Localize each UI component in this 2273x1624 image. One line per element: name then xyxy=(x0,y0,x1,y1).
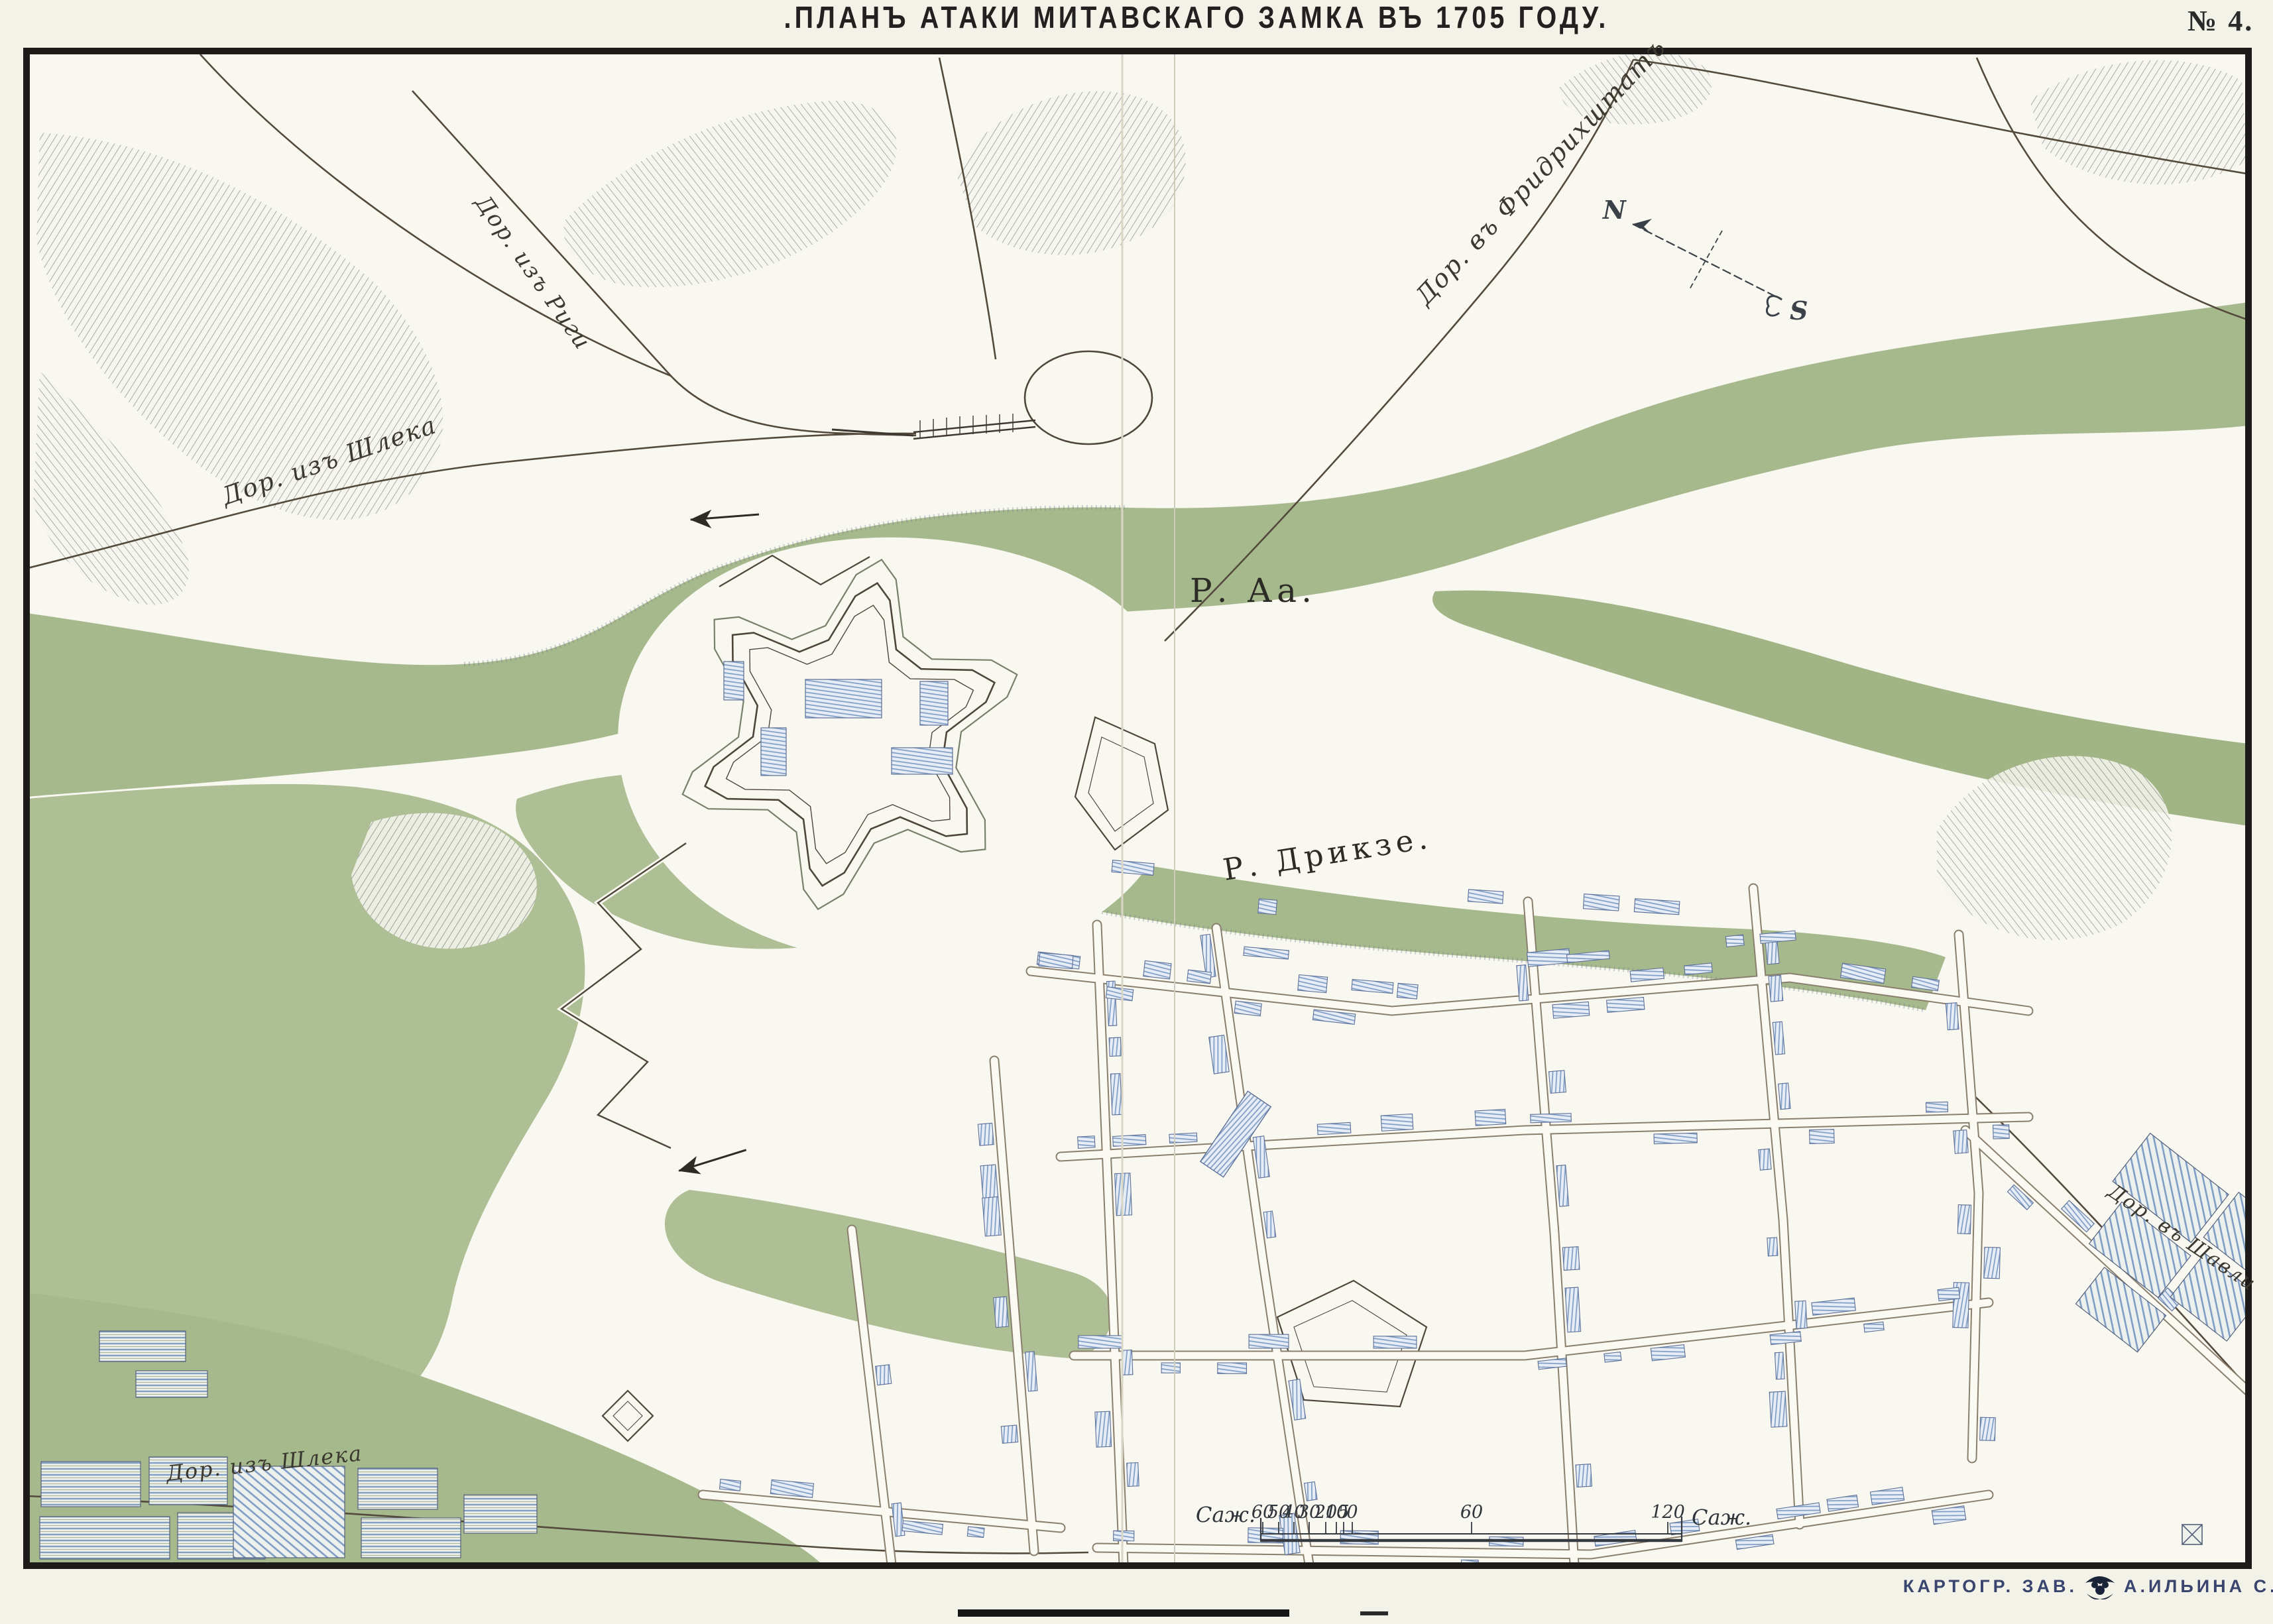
town-building xyxy=(1565,1287,1581,1332)
town-building xyxy=(967,1527,984,1537)
town-building xyxy=(1127,1463,1139,1487)
town-building xyxy=(994,1297,1009,1327)
town-building xyxy=(1095,1411,1112,1447)
oxbow-ring xyxy=(1025,351,1152,444)
historic-map-canvas: .ПЛАНЪ АТАКИ МИТАВСКАГО ЗАМКА ВЪ 1705 ГО… xyxy=(0,0,2273,1621)
town-building xyxy=(1143,960,1171,979)
town-building xyxy=(1113,1135,1146,1147)
town-building xyxy=(1562,1247,1580,1271)
town-building xyxy=(1980,1417,1996,1440)
town-building xyxy=(1552,1002,1590,1018)
town-building xyxy=(1078,1336,1122,1348)
scale-tick-label: 120 xyxy=(1651,1502,1685,1523)
town-building xyxy=(1769,1391,1787,1427)
town-building xyxy=(1953,1130,1969,1154)
town-building xyxy=(1110,1074,1122,1115)
town-building xyxy=(1725,935,1744,947)
town-building xyxy=(1864,1322,1885,1332)
town-building xyxy=(1549,1071,1566,1093)
scale-unit-left: Саж. xyxy=(1196,1502,1255,1527)
scale-unit-right: Саж. xyxy=(1692,1505,1751,1530)
town-building xyxy=(1305,1481,1318,1501)
town-building xyxy=(1114,1531,1134,1540)
town-building xyxy=(1938,1287,1959,1301)
town-building xyxy=(1775,1352,1784,1379)
town-building xyxy=(1106,987,1133,1001)
town-building xyxy=(982,1196,1002,1236)
town-building xyxy=(1769,975,1783,1002)
town-building xyxy=(1373,1336,1417,1348)
town-building xyxy=(1810,1130,1835,1144)
town-building xyxy=(1340,1531,1378,1544)
map-title: .ПЛАНЪ АТАКИ МИТАВСКАГО ЗАМКА ВЪ 1705 ГО… xyxy=(784,0,1609,34)
plate-number: № 4. xyxy=(2187,5,2254,37)
town-building xyxy=(978,1123,994,1145)
town-building xyxy=(1576,1464,1592,1487)
compass-north-label: N xyxy=(1602,195,1627,225)
imprint-right: А.ИЛЬИНА С.П.Б. xyxy=(2124,1576,2273,1596)
town-building xyxy=(1298,975,1328,993)
town-building xyxy=(1001,1425,1018,1443)
corner-mark xyxy=(2182,1525,2202,1544)
scan-artifact-bar xyxy=(958,1609,1289,1617)
imprint-left: КАРТОГР. ЗАВ. xyxy=(1903,1576,2077,1596)
town-building xyxy=(1531,1114,1572,1123)
town-building xyxy=(1984,1247,2001,1279)
town-building xyxy=(1234,1001,1261,1016)
town-building xyxy=(876,1365,892,1385)
town-building xyxy=(1604,1352,1621,1363)
town-building xyxy=(1249,1334,1289,1348)
town-building xyxy=(1767,1238,1778,1256)
town-building xyxy=(1161,1363,1180,1373)
town-building xyxy=(1039,953,1073,968)
town-building xyxy=(1926,1102,1948,1112)
town-building xyxy=(1187,970,1212,984)
town-building xyxy=(720,1479,741,1491)
town-building xyxy=(1946,1003,1959,1030)
town-building xyxy=(1317,1122,1351,1134)
river-aa-label: Р. Аа. xyxy=(1190,571,1316,610)
town-building xyxy=(1109,1037,1121,1056)
town-building xyxy=(1258,899,1277,915)
town-building xyxy=(1381,1114,1413,1131)
town-building xyxy=(1795,1301,1807,1328)
town-building xyxy=(1122,1350,1133,1375)
town-building xyxy=(1218,1363,1247,1373)
town-building xyxy=(1078,1136,1095,1149)
town-building xyxy=(1778,1083,1790,1110)
town-building xyxy=(1957,1205,1971,1234)
scale-tick-label: 60 xyxy=(1460,1502,1483,1523)
town-building xyxy=(1468,890,1503,903)
town-building xyxy=(1654,1133,1697,1144)
town-building xyxy=(1993,1125,2010,1139)
town-building xyxy=(1169,1133,1197,1143)
town-building xyxy=(980,1165,998,1198)
town-building xyxy=(1634,899,1680,915)
town-building xyxy=(1759,1149,1771,1170)
town-building xyxy=(1607,997,1645,1012)
town-building xyxy=(1397,983,1418,999)
scan-artifact-dash xyxy=(1360,1611,1388,1615)
town-building xyxy=(1475,1109,1506,1126)
town-building xyxy=(1583,894,1619,911)
compass-south-label: S xyxy=(1790,296,1808,325)
town-building xyxy=(1115,1173,1132,1216)
scale-tick-label: 0 xyxy=(1346,1502,1358,1523)
